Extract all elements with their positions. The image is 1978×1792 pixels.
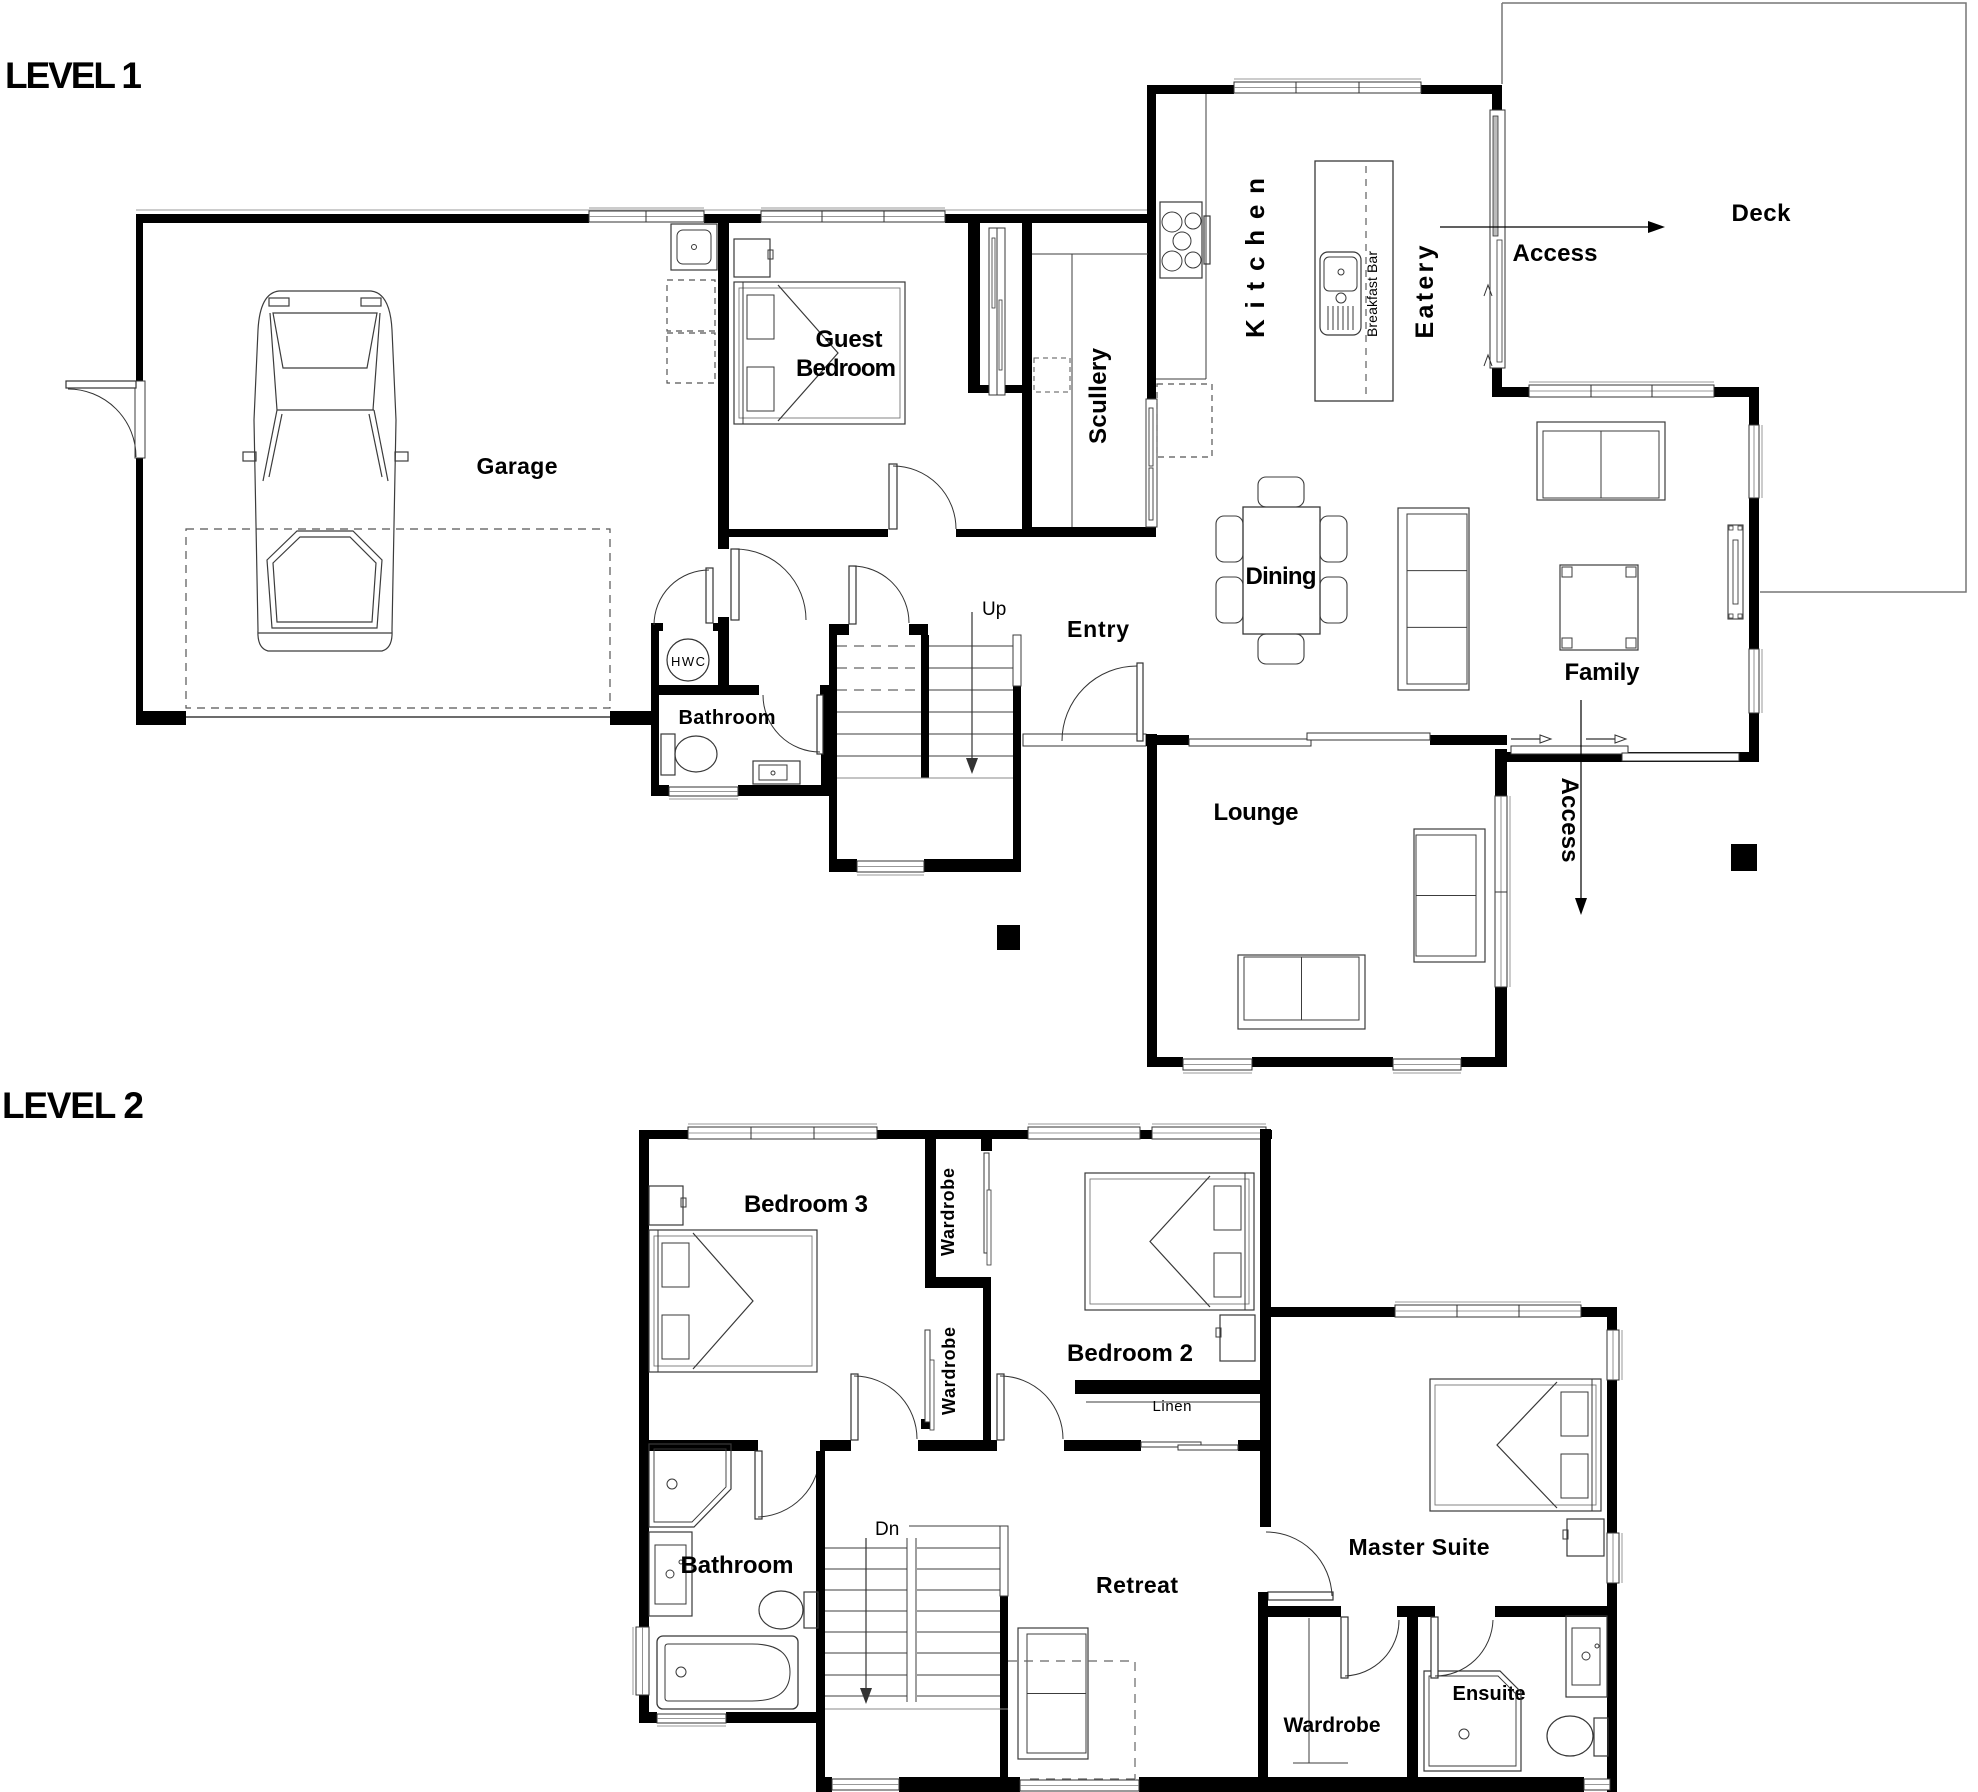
svg-text:Dn: Dn	[875, 1519, 899, 1540]
svg-text:LEVEL 1: LEVEL 1	[5, 55, 142, 96]
svg-text:Bathroom: Bathroom	[679, 707, 776, 729]
svg-text:Kitchen: Kitchen	[1240, 178, 1270, 338]
svg-text:Eatery: Eatery	[1411, 245, 1439, 338]
svg-text:Garage: Garage	[477, 453, 558, 479]
svg-text:Breakfast Bar: Breakfast Bar	[1364, 251, 1380, 337]
svg-text:Linen: Linen	[1153, 1398, 1192, 1415]
svg-text:Master Suite: Master Suite	[1349, 1534, 1490, 1560]
svg-text:Wardrobe: Wardrobe	[1284, 1714, 1381, 1737]
svg-text:Wardrobe: Wardrobe	[938, 1168, 958, 1256]
svg-text:Lounge: Lounge	[1214, 799, 1299, 826]
svg-text:Bedroom 3: Bedroom 3	[744, 1191, 868, 1218]
svg-text:Access: Access	[1556, 778, 1583, 863]
svg-text:Bedroom 2: Bedroom 2	[1067, 1340, 1193, 1367]
svg-text:Up: Up	[982, 599, 1006, 620]
svg-text:Bathroom: Bathroom	[681, 1552, 794, 1579]
svg-text:Scullery: Scullery	[1085, 347, 1112, 444]
svg-text:LEVEL 2: LEVEL 2	[2, 1085, 144, 1126]
svg-text:Access: Access	[1513, 240, 1598, 267]
svg-text:Deck: Deck	[1732, 200, 1792, 227]
svg-text:HWC: HWC	[671, 654, 705, 669]
svg-text:Retreat: Retreat	[1096, 1572, 1178, 1598]
svg-text:Wardrobe: Wardrobe	[939, 1327, 959, 1415]
svg-text:Dining: Dining	[1246, 563, 1317, 590]
svg-text:Family: Family	[1565, 659, 1641, 686]
svg-text:Bedroom: Bedroom	[796, 355, 896, 382]
svg-text:Entry: Entry	[1067, 616, 1129, 642]
svg-text:Guest: Guest	[816, 326, 883, 353]
